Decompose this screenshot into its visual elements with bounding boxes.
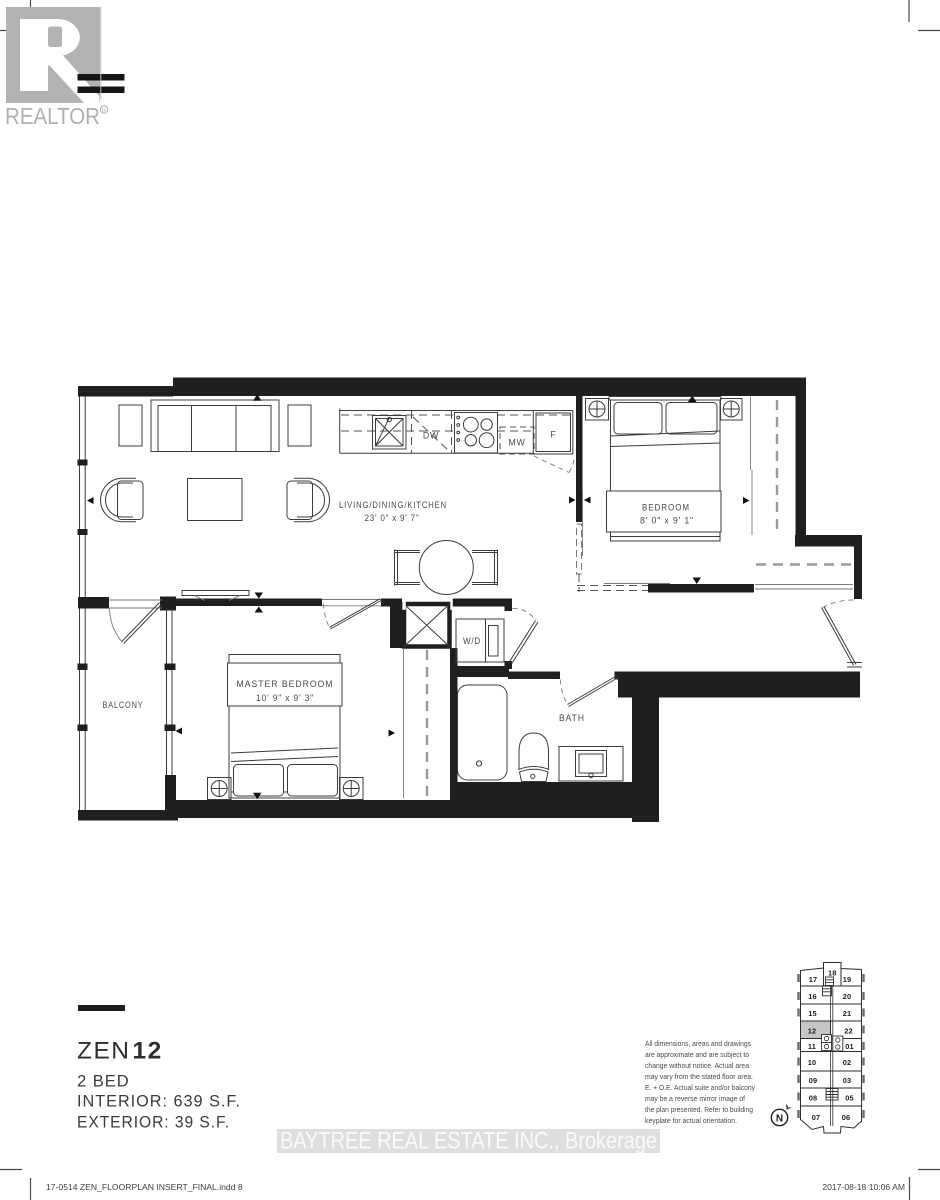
svg-text:08: 08 (809, 1094, 818, 1103)
svg-text:N: N (776, 1114, 783, 1125)
svg-text:21: 21 (843, 1009, 852, 1018)
svg-text:BALCONY: BALCONY (103, 700, 144, 711)
svg-text:05: 05 (845, 1094, 854, 1103)
svg-text:INTERIOR: 639 S.F.: INTERIOR: 639 S.F. (77, 1093, 241, 1111)
svg-text:DW: DW (423, 431, 439, 441)
svg-text:18: 18 (828, 969, 837, 978)
svg-text:02: 02 (843, 1058, 852, 1067)
svg-text:may vary from the stated floor: may vary from the stated floor area. (645, 1072, 753, 1081)
svg-text:12: 12 (808, 1027, 817, 1036)
svg-text:EXTERIOR: 39 S.F.: EXTERIOR: 39 S.F. (77, 1114, 230, 1132)
svg-text:F: F (550, 430, 556, 440)
svg-text:keyplate for actual orientatio: keyplate for actual orientation. (645, 1116, 737, 1125)
svg-text:10: 10 (808, 1058, 817, 1067)
svg-text:22: 22 (844, 1027, 853, 1036)
svg-text:17: 17 (809, 975, 818, 984)
svg-text:07: 07 (812, 1113, 821, 1122)
svg-text:MW: MW (508, 438, 525, 448)
svg-text:03: 03 (843, 1076, 852, 1085)
svg-text:23' 0" x 9' 7": 23' 0" x 9' 7" (365, 513, 420, 523)
svg-text:19: 19 (843, 975, 852, 984)
svg-text:E. + O.E. Actual suite and/or: E. + O.E. Actual suite and/or balcony (645, 1083, 755, 1092)
svg-text:BAYTREE REAL ESTATE INC., Brok: BAYTREE REAL ESTATE INC., Brokerage (280, 1128, 657, 1155)
svg-text:are approximate and are subjec: are approximate and are subject to (645, 1050, 749, 1059)
svg-text:BATH: BATH (559, 713, 585, 724)
svg-text:17-0514 ZEN_FLOORPLAN INSERT_F: 17-0514 ZEN_FLOORPLAN INSERT_FINAL.indd … (46, 1182, 243, 1192)
svg-text:change without notice. Actual: change without notice. Actual area (645, 1061, 750, 1070)
svg-text:16: 16 (808, 992, 817, 1001)
svg-text:2 BED: 2 BED (77, 1073, 130, 1091)
svg-text:11: 11 (808, 1042, 816, 1051)
svg-text:REALTOR: REALTOR (5, 103, 100, 129)
svg-text:09: 09 (809, 1076, 818, 1085)
svg-text:R: R (102, 108, 106, 114)
svg-text:W/D: W/D (463, 636, 481, 646)
svg-text:20: 20 (843, 992, 852, 1001)
svg-text:2017-08-18 10:06 AM: 2017-08-18 10:06 AM (822, 1182, 905, 1192)
svg-text:15: 15 (808, 1009, 817, 1018)
svg-text:LIVING/DINING/KITCHEN: LIVING/DINING/KITCHEN (339, 500, 447, 511)
svg-text:BEDROOM: BEDROOM (642, 503, 690, 514)
svg-text:10' 9" x 9' 3": 10' 9" x 9' 3" (256, 693, 314, 703)
svg-text:8' 0" x 9' 1": 8' 0" x 9' 1" (640, 516, 694, 526)
svg-text:MASTER BEDROOM: MASTER BEDROOM (237, 679, 334, 690)
svg-text:06: 06 (842, 1113, 851, 1122)
svg-text:ZEN12: ZEN12 (77, 1038, 163, 1065)
svg-text:may be a reverse mirror image: may be a reverse mirror image of (645, 1094, 746, 1103)
svg-text:the plan presented. Refer to b: the plan presented. Refer to building (645, 1105, 753, 1114)
svg-text:All dimensions, areas and draw: All dimensions, areas and drawings (645, 1039, 751, 1048)
svg-text:01: 01 (845, 1042, 854, 1051)
